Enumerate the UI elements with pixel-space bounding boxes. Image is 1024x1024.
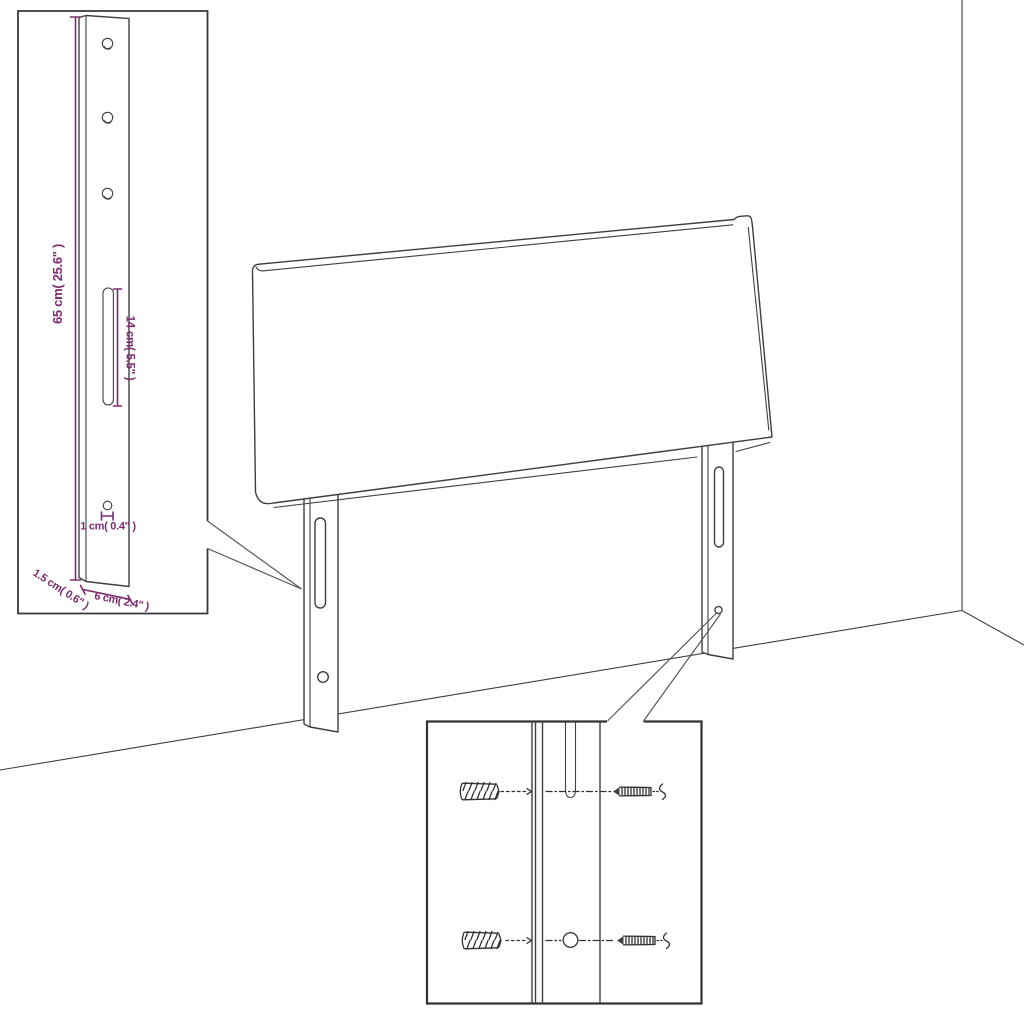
mounting-detail-inset <box>427 722 702 1004</box>
right-leg-screw-hole <box>715 606 722 613</box>
right-leg-slot <box>715 467 724 547</box>
left-leg-screw-hole <box>318 672 329 683</box>
assembly-diagram-canvas: 65 cm( 25.6" ) 14 cm( 5.5" ) 1 cm( 0.4" … <box>0 0 1024 1024</box>
dimension-hole-diameter-label: 1 cm( 0.4" ) <box>80 521 136 533</box>
headboard-right-leg <box>702 435 733 659</box>
callout-wedge-left <box>208 521 302 589</box>
headboard-left-leg <box>304 485 338 732</box>
mounting-hole <box>563 933 578 948</box>
detail-small-hole <box>103 501 112 510</box>
detail-slot <box>103 288 113 405</box>
left-leg-slot <box>315 518 326 608</box>
headboard-panel <box>253 216 773 504</box>
diagram-svg: 65 cm( 25.6" ) 14 cm( 5.5" ) 1 cm( 0.4" … <box>0 0 1024 1024</box>
dimension-height-label: 65 cm( 25.6" ) <box>50 244 65 324</box>
leg-detail-inset: 65 cm( 25.6" ) 14 cm( 5.5" ) 1 cm( 0.4" … <box>18 11 208 614</box>
dimension-slot-length-label: 14 cm( 5.5" ) <box>124 316 137 381</box>
floor-line-right <box>962 611 1024 646</box>
